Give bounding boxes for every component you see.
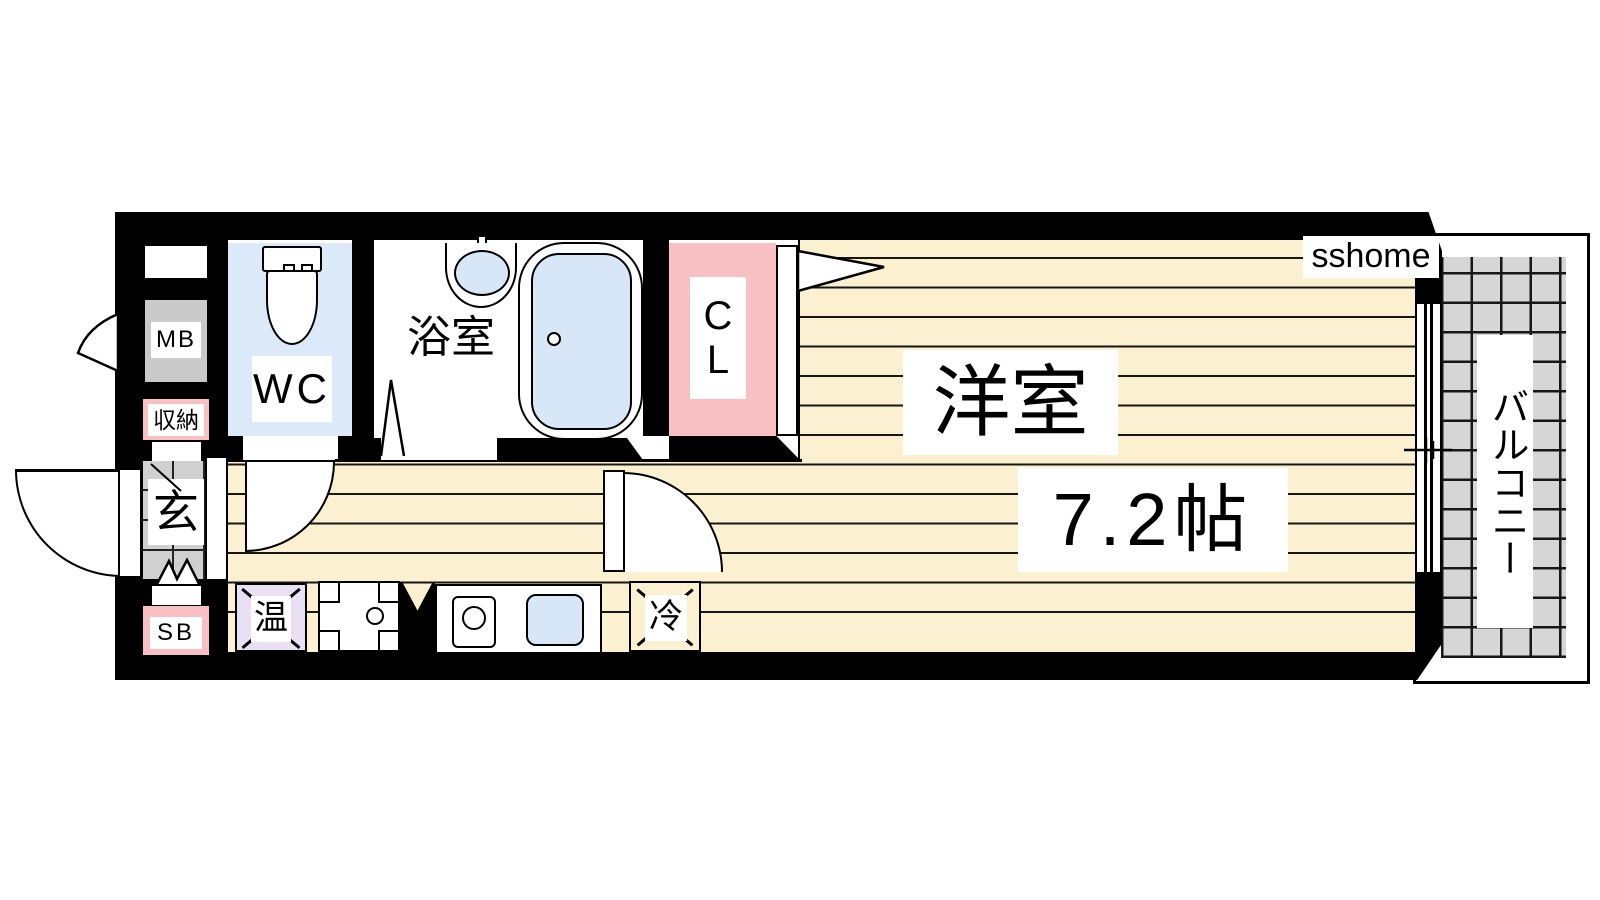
balcony-window [1415, 277, 1442, 599]
bathtub-drain [547, 332, 561, 346]
meter-box-door-swing-icon [78, 314, 118, 371]
bath-sink-bowl [454, 250, 510, 296]
closet-label: CL [690, 277, 746, 399]
meter-box-label: MB [151, 322, 201, 358]
washer-pan-corner-bl [318, 630, 340, 652]
wall-bath-closet [643, 240, 669, 436]
closet-door-leaf [776, 245, 798, 436]
wc-label: WC [252, 356, 332, 422]
entrance-lower-step [150, 584, 203, 607]
kitchen-sink [526, 594, 584, 646]
window-middle-line-b [1430, 304, 1433, 572]
wall-bottom [115, 652, 1417, 680]
storage-label: 収納 [148, 404, 204, 436]
niche-box [145, 246, 207, 278]
main-room-size-label: 7.2帖 [1018, 468, 1288, 572]
floorplan-canvas: バルコニー MB 収納 玄 SB WC 浴室 [0, 0, 1600, 900]
wall-band-seg2 [338, 436, 381, 460]
wall-band-under-closet [669, 436, 800, 460]
washer-pan-corner-br [378, 630, 400, 652]
stove-burner [462, 606, 486, 630]
window-cap-top [1415, 277, 1442, 304]
wc-door-opening [243, 436, 335, 460]
washer-pan-corner-tl [318, 581, 340, 603]
watermark-sshome: sshome [1303, 236, 1439, 278]
water-heater-label: 温 [251, 596, 291, 642]
entrance-door-arc [15, 470, 122, 577]
bathtub-inner [531, 253, 632, 430]
entrance-door-leaf [118, 468, 142, 578]
entrance-label: 玄 [148, 479, 204, 545]
entrance-upper-step [150, 440, 203, 463]
window-middle-line-a [1424, 304, 1427, 572]
washer-pan-corner-tr [378, 581, 400, 603]
main-room-label: 洋室 [903, 350, 1118, 455]
entrance-side-strip [205, 458, 228, 579]
wall-top [115, 212, 1415, 240]
washer-drain [366, 607, 384, 625]
bathroom-label: 浴室 [390, 312, 512, 364]
bath-door-opening [381, 436, 497, 460]
balcony-label: バルコニー [1477, 335, 1533, 628]
wall-wc-bath [352, 240, 374, 460]
shoe-box-label: SB [150, 617, 202, 649]
entrance-door-open-line [15, 469, 122, 472]
room-door-leaf [603, 470, 625, 572]
refrigerator-label: 冷 [645, 595, 687, 641]
window-cap-bottom [1415, 572, 1442, 599]
